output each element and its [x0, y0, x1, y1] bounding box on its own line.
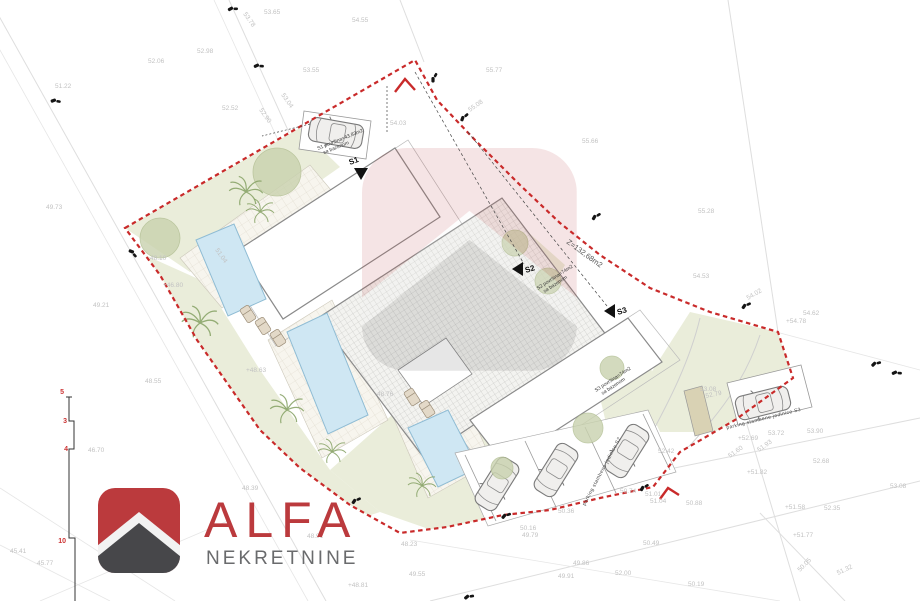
elevation-label: 48.39 — [242, 485, 259, 492]
elevation-label: 51.01 — [645, 491, 662, 498]
elevation-label: +46.80 — [163, 282, 183, 289]
elevation-label: 53.08 — [890, 483, 907, 490]
elevation-label: 49.79 — [522, 532, 539, 539]
company-logo: ALFA NEKRETNINE — [92, 488, 358, 580]
elevation-label: 45.41 — [10, 548, 27, 555]
elevation-label: 55.66 — [582, 138, 599, 145]
elevation-label: 49.86 — [573, 560, 590, 567]
elevation-label: 50.88 — [686, 500, 703, 507]
elevation-label: 49.55 — [409, 571, 426, 578]
elevation-label: +48.63 — [246, 367, 266, 374]
elevation-label: 54.02 — [746, 287, 764, 301]
elevation-label: +51.77 — [793, 532, 813, 539]
elevation-label: 53.55 — [303, 67, 320, 74]
section-mark-1: 5 — [60, 389, 64, 396]
elevation-label: 50.19 — [688, 581, 705, 588]
elevation-label: 51.60 — [727, 444, 745, 459]
elevation-label: 54.62 — [803, 310, 820, 317]
elevation-label: 50.36 — [558, 508, 575, 515]
logo-title: ALFA — [204, 492, 358, 548]
elevation-label: 48.55 — [145, 378, 162, 385]
site-plan-page: 53.7853.6554.5552.0652.9855.7751.2253.55… — [0, 0, 920, 601]
elevation-label: 52.42 — [658, 448, 675, 455]
elevation-label: 53.90 — [807, 428, 824, 435]
elevation-label: 52.35 — [824, 505, 841, 512]
elevation-label: 51.04 — [650, 498, 667, 505]
elevation-label: +51.58 — [785, 504, 805, 511]
elevation-label: 51.22 — [55, 83, 72, 90]
elevation-label: 54.53 — [693, 273, 710, 280]
elevation-label: 53.04 — [279, 92, 294, 110]
elevation-label: 52.90 — [257, 107, 272, 125]
elevation-label: +48.81 — [348, 582, 368, 589]
elevation-label: 52.00 — [615, 570, 632, 577]
elevation-label: 52.98 — [197, 48, 214, 55]
elevation-label: 54.55 — [352, 17, 369, 24]
section-mark-2: 3 — [63, 418, 67, 425]
elevation-label: 49.73 — [46, 204, 63, 211]
elevation-label: 51.32 — [836, 563, 854, 576]
elevation-label: 50.74 — [620, 488, 637, 495]
watermark-logo — [346, 148, 592, 389]
section-mark-4: 10 — [58, 538, 66, 545]
elevation-label: 54.03 — [390, 120, 407, 127]
elevation-label: 55.08 — [467, 98, 485, 113]
elevation-label: 50.49 — [643, 540, 660, 547]
elevation-label: 55.28 — [698, 208, 715, 215]
elevation-label: 50.16 — [520, 525, 537, 532]
elevation-label: +54.78 — [786, 318, 806, 325]
elevation-label: +52.69 — [738, 435, 758, 442]
elevation-label: 53.78 — [241, 11, 256, 29]
elevation-label: 55.77 — [486, 67, 503, 74]
logo-subtitle: NEKRETNINE — [206, 548, 358, 569]
elevation-label: 49.91 — [558, 573, 575, 580]
elevation-label: 49.21 — [93, 302, 110, 309]
elevation-label: 52.52 — [222, 105, 239, 112]
section-line: 5 3 4 10 — [58, 389, 75, 601]
elevation-label: 48.76 — [377, 391, 394, 398]
elevation-label: 53.72 — [768, 430, 785, 437]
elevation-label: 45.77 — [37, 560, 54, 567]
elevation-label: 52.06 — [148, 58, 165, 65]
elevation-label: +51.82 — [747, 469, 767, 476]
elevation-label: 51.93 — [756, 438, 774, 453]
section-mark-3: 4 — [64, 446, 68, 453]
elevation-label: 52.68 — [813, 458, 830, 465]
elevation-label: 48.10 — [150, 255, 167, 262]
elevation-label: 53.65 — [264, 9, 281, 16]
elevation-label: 46.70 — [88, 447, 105, 454]
elevation-label: 48.23 — [401, 541, 418, 548]
site-plan-drawing: 53.7853.6554.5552.0652.9855.7751.2253.55… — [0, 0, 920, 601]
